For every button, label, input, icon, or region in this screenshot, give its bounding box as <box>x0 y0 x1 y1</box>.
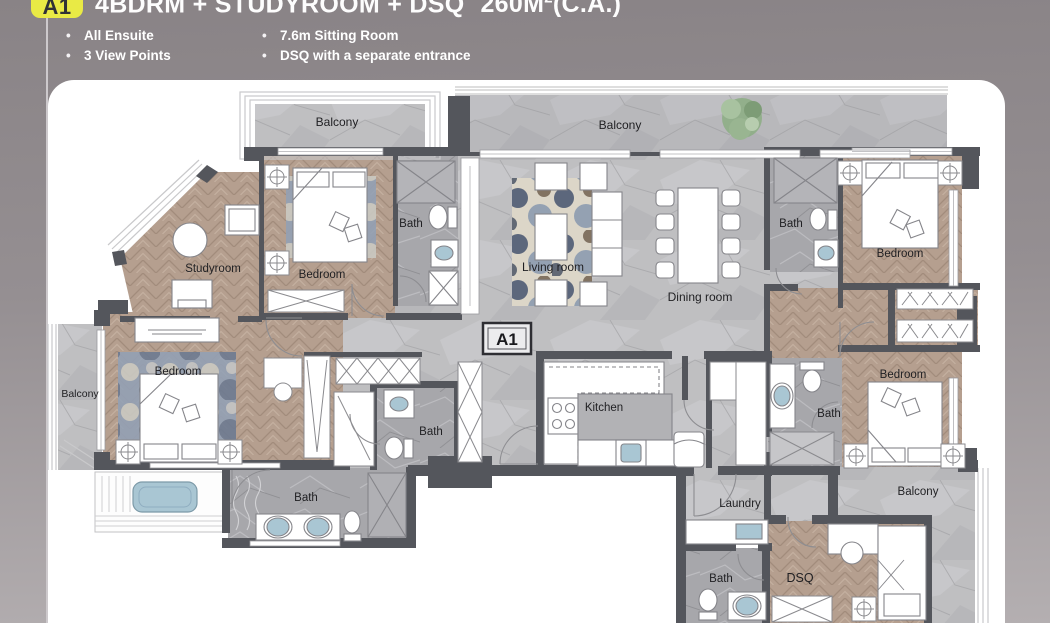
bullet-text: DSQ with a separate entrance <box>280 48 471 63</box>
bed-right <box>868 382 942 466</box>
window <box>250 541 340 546</box>
kitchen-sink <box>621 444 641 462</box>
master-closet-x <box>336 358 420 384</box>
bullet-text: All Ensuite <box>84 28 154 43</box>
bullet-item: •All Ensuite <box>66 26 171 46</box>
dsq-wardrobe <box>772 596 832 622</box>
nightstand-symbol <box>941 444 965 468</box>
nightstand-symbol <box>265 251 289 275</box>
bullet-dot: • <box>262 46 280 66</box>
bullet-list-left: •All Ensuite •3 View Points <box>66 26 171 66</box>
room-label-laundry: Laundry <box>719 498 761 510</box>
room-label-bath: Bath <box>399 218 423 230</box>
balcony-left-railing <box>48 324 56 470</box>
dsq-bed <box>878 526 926 620</box>
bullet-item: •DSQ with a separate entrance <box>262 46 471 66</box>
room-label-dsq: DSQ <box>786 571 813 585</box>
page-title: 4BDRM + STUDYROOM + DSQ260M2(C.A.) <box>95 0 621 19</box>
nightstand-symbol <box>844 444 868 468</box>
bullet-text: 7.6m Sitting Room <box>280 28 399 43</box>
toilet <box>810 208 826 230</box>
room-label-bedroom: Bedroom <box>299 269 346 281</box>
balcony-shade <box>455 95 947 154</box>
laundry-fixtures <box>686 520 768 544</box>
title-main: 4BDRM + STUDYROOM + DSQ <box>95 0 464 18</box>
room-label-dining-room: Dining room <box>668 290 733 304</box>
bullet-dot: • <box>66 46 84 66</box>
room-label-bedroom: Bedroom <box>155 366 202 378</box>
room-label-balcony: Balcony <box>599 118 642 132</box>
stove <box>548 398 578 434</box>
fridge <box>674 432 704 467</box>
window <box>150 463 280 468</box>
room-label-bath: Bath <box>709 573 733 585</box>
nightstand-symbol <box>265 165 289 189</box>
unit-badge: A1 <box>31 0 83 18</box>
toilet-tank <box>800 362 824 370</box>
toilet <box>344 511 360 533</box>
bullet-item: •3 View Points <box>66 46 171 66</box>
floorplan-drawing: A1 BalconyBalconyBathBathBedroomBedroomS… <box>0 0 1050 623</box>
study-table <box>173 223 207 257</box>
duct-center <box>458 362 482 462</box>
nightstand-symbol <box>116 440 140 464</box>
room-label-bedroom: Bedroom <box>877 248 924 260</box>
bed-topleft <box>293 168 367 262</box>
bedroom-right-entry-floor <box>768 288 842 360</box>
room-label-bath: Bath <box>419 426 443 438</box>
page-background: A1 4BDRM + STUDYROOM + DSQ260M2(C.A.) •A… <box>0 0 1050 623</box>
unit-label-text: A1 <box>496 330 518 349</box>
balcony-topcenter-railing <box>455 87 948 94</box>
toilet <box>429 205 447 229</box>
terrace <box>95 472 228 532</box>
balcony-bottomright-railing <box>978 468 988 623</box>
room-label-balcony: Balcony <box>61 388 99 400</box>
laundry-sink <box>736 524 762 539</box>
nightstand-symbol <box>218 440 242 464</box>
dsq-chair <box>841 542 863 564</box>
nightstand-symbol <box>852 597 876 621</box>
room-label-studyroom: Studyroom <box>185 263 241 275</box>
bullet-text: 3 View Points <box>84 48 171 63</box>
bullet-list-right: •7.6m Sitting Room •DSQ with a separate … <box>262 26 471 66</box>
title-area-suffix: (C.A.) <box>553 0 621 18</box>
dsq-bath-fixtures <box>699 589 766 620</box>
nightstand-symbol <box>838 161 862 185</box>
toilet <box>803 370 821 392</box>
kitchen-island <box>578 394 672 440</box>
room-label-living-room: Living room <box>522 260 584 274</box>
room-label-kitchen: Kitchen <box>585 402 623 414</box>
title-area: 260M <box>480 0 544 18</box>
master-bed <box>140 374 218 462</box>
master-console <box>135 318 219 342</box>
room-label-balcony: Balcony <box>316 115 359 129</box>
wardrobe-under-bedroom-topleft <box>268 290 344 312</box>
nightstand-symbol <box>938 161 962 185</box>
bed-topright <box>862 160 938 248</box>
room-label-bath: Bath <box>779 218 803 230</box>
bullet-dot: • <box>262 26 280 46</box>
toilet <box>699 589 717 611</box>
dining-table <box>678 188 718 283</box>
toilet <box>385 437 403 459</box>
duct-laundry <box>770 432 834 465</box>
master-wardrobe-tall <box>304 356 330 458</box>
room-label-bath: Bath <box>817 408 841 420</box>
room-label-balcony: Balcony <box>898 486 939 498</box>
room-label-bedroom: Bedroom <box>880 369 927 381</box>
unit-label-box: A1 <box>483 323 531 354</box>
bullet-item: •7.6m Sitting Room <box>262 26 471 46</box>
title-area-sup: 2 <box>544 0 553 7</box>
bullet-dot: • <box>66 26 84 46</box>
room-label-bath: Bath <box>294 492 318 504</box>
